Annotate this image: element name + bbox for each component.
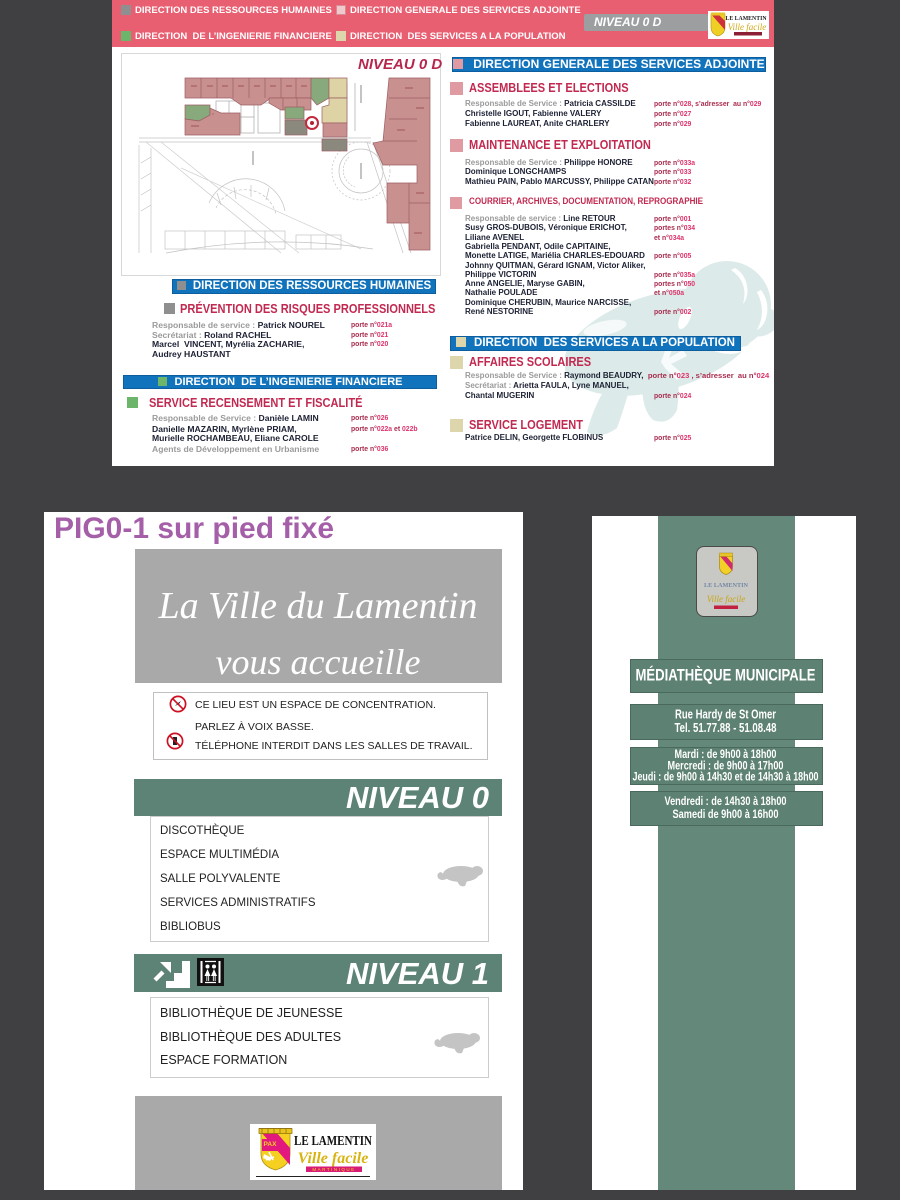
svg-text:MARTINIQUE: MARTINIQUE xyxy=(312,1167,355,1172)
svg-text:vous accueille: vous accueille xyxy=(216,642,421,682)
svg-text:Samedi de 9h00 à 16h00: Samedi de 9h00 à 16h00 xyxy=(673,807,779,821)
svg-text:PAX: PAX xyxy=(264,1141,278,1148)
svg-text:MÉDIATHÈQUE MUNICIPALE: MÉDIATHÈQUE MUNICIPALE xyxy=(636,666,816,685)
svg-text:Ville facile: Ville facile xyxy=(728,22,767,32)
svg-text:Rue Hardy de St Omer: Rue Hardy de St Omer xyxy=(675,708,776,722)
svg-text:Ville facile: Ville facile xyxy=(707,594,746,604)
svg-text:Ville facile: Ville facile xyxy=(298,1150,369,1167)
svg-text:LE LAMENTIN: LE LAMENTIN xyxy=(704,582,748,589)
svg-text:Vendredi : de 14h30 à 18h00: Vendredi : de 14h30 à 18h00 xyxy=(665,794,787,808)
svg-text:Jeudi : de 9h00 à 14h30 et de: Jeudi : de 9h00 à 14h30 et de 14h30 à 18… xyxy=(633,772,819,784)
svg-text:La Ville du Lamentin: La Ville du Lamentin xyxy=(157,585,477,627)
svg-text:Mardi : de 9h00 à 18h00: Mardi : de 9h00 à 18h00 xyxy=(675,749,777,761)
svg-text:Tel. 51.77.88 - 51.08.48: Tel. 51.77.88 - 51.08.48 xyxy=(675,721,777,735)
svg-text:LE LAMENTIN: LE LAMENTIN xyxy=(294,1134,372,1149)
